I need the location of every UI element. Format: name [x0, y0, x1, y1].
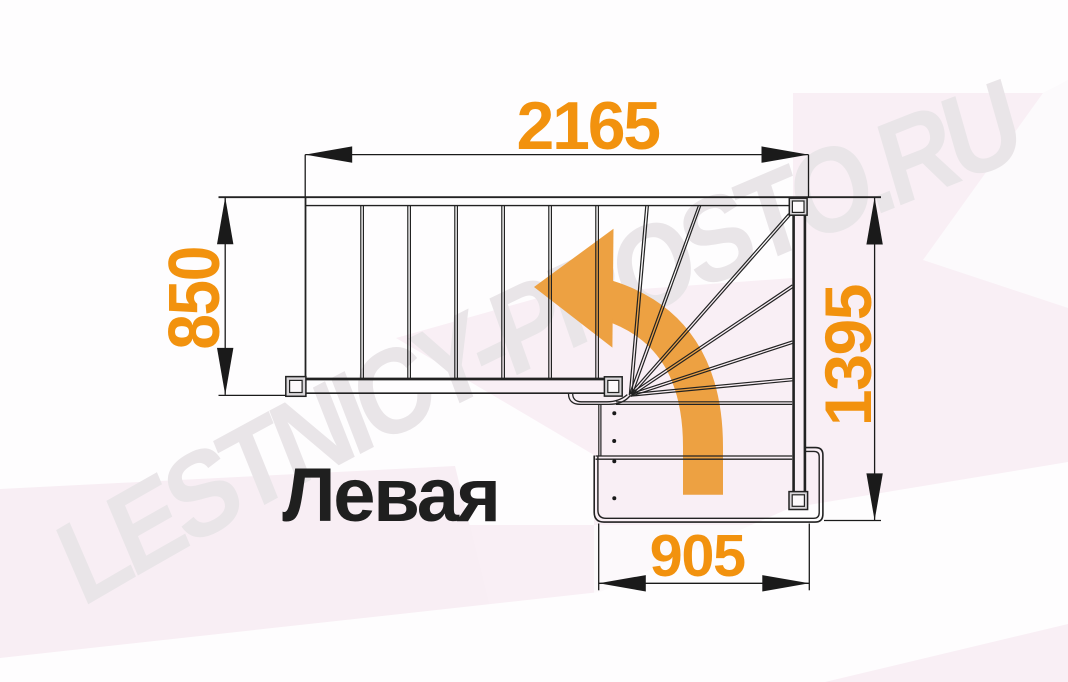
svg-text:Левая: Левая — [282, 453, 498, 538]
svg-text:2165: 2165 — [516, 88, 659, 164]
svg-text:905: 905 — [650, 522, 745, 589]
svg-text:1395: 1395 — [811, 285, 885, 426]
svg-text:850: 850 — [155, 247, 235, 350]
